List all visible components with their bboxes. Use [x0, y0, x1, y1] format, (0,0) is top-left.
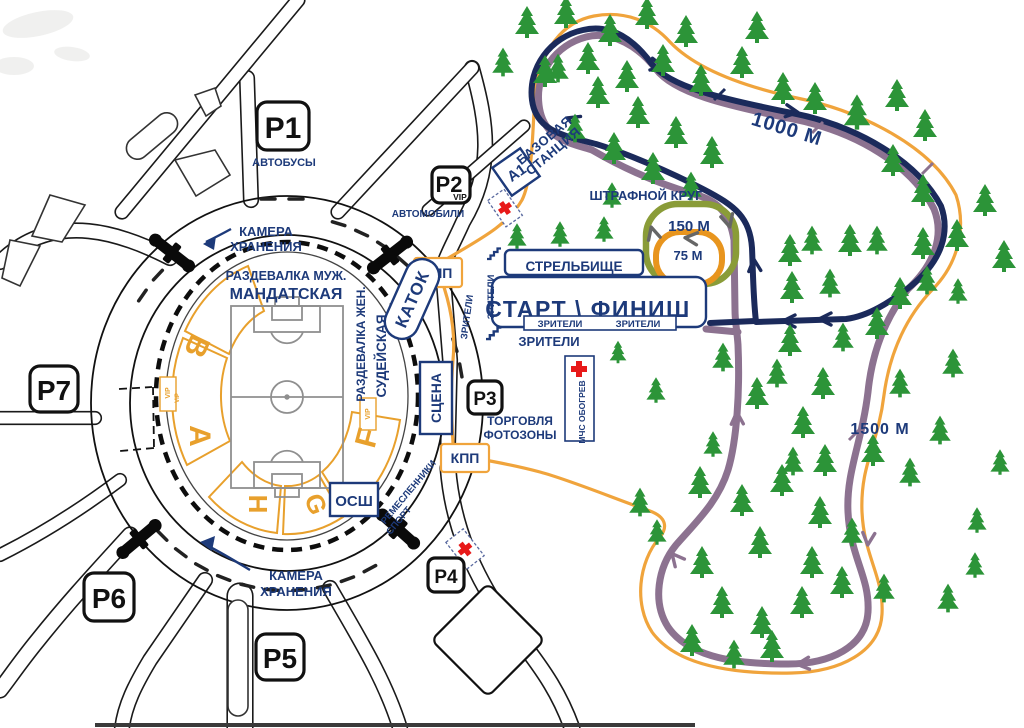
fir-tree-icon	[690, 546, 714, 578]
luggage-south-arrow	[210, 547, 250, 570]
parking-dash	[398, 257, 408, 266]
fir-tree-icon	[830, 566, 854, 598]
spectators-label: ЗРИТЕЛИ	[459, 294, 476, 340]
fir-tree-icon	[992, 240, 1016, 272]
fir-tree-icon	[576, 42, 600, 74]
luggage-south-line1: КАМЕРА	[269, 568, 323, 583]
fir-tree-icon	[712, 343, 734, 372]
vip-west-label2: VIP	[175, 393, 181, 403]
spectators-label: ЗРИТЕЛИ	[616, 319, 661, 330]
fir-tree-icon	[973, 184, 997, 216]
parking-p6-label: Р6	[92, 583, 126, 614]
fir-tree-icon	[646, 377, 665, 403]
cars-label: АВТОМОБИЛИ	[392, 209, 464, 220]
fir-tree-icon	[929, 416, 951, 445]
fir-tree-icon	[780, 271, 804, 303]
fir-tree-icon	[610, 341, 627, 363]
mchs-label: МЧС ОБОГРЕВ	[577, 380, 587, 443]
fir-tree-icon	[766, 359, 788, 388]
fir-tree-icon	[674, 15, 698, 47]
trail-1500m-finish-link	[706, 329, 738, 332]
fir-tree-icon	[838, 224, 862, 256]
trade-label: ТОРГОВЛЯ	[487, 414, 553, 428]
fir-tree-icon	[808, 496, 832, 528]
kpp-label: КПП	[451, 450, 480, 466]
fir-tree-icon	[688, 466, 712, 498]
fir-tree-icon	[790, 586, 814, 618]
fir-tree-icon	[703, 431, 722, 457]
parking-p3-label: Р3	[473, 389, 496, 410]
photo-label: ФОТОЗОНЫ	[483, 428, 556, 442]
fir-tree-icon	[550, 221, 569, 247]
direction-arrow-icon	[862, 533, 875, 546]
fir-tree-icon	[801, 226, 823, 255]
buses-label: АВТОБУСЫ	[252, 157, 316, 169]
luggage-south-line2: ХРАНЕНИЯ	[260, 584, 332, 599]
fir-tree-icon	[841, 518, 863, 547]
fir-tree-icon	[945, 219, 969, 251]
parking-dash	[176, 549, 186, 557]
parking-dash	[139, 290, 146, 301]
fir-tree-icon	[723, 640, 745, 669]
fir-tree-icon	[771, 72, 795, 104]
trail-1000m-finish-link	[710, 321, 755, 323]
fir-tree-icon	[965, 552, 984, 578]
fir-tree-icon	[730, 484, 754, 516]
trail-1500m-label: 1500 М	[850, 421, 909, 438]
mandate-label: МАНДАТСКАЯ	[230, 286, 343, 303]
luggage-north-arrowhead	[203, 236, 216, 250]
parking-p5-label: Р5	[263, 643, 297, 674]
parking-p7-label: Р7	[37, 375, 71, 406]
parking-dash	[460, 364, 462, 377]
fir-tree-icon	[710, 586, 734, 618]
fir-tree-icon	[629, 488, 651, 517]
parking-dash	[364, 566, 375, 572]
venue-map-svg: СТРЕЛЬБИЩЕ СТАРТ \ ФИНИШ ЗРИТЕЛИ ЗРИТЕЛИ…	[0, 0, 1024, 728]
osh-label: ОСШ	[335, 493, 373, 510]
fir-tree-icon	[990, 449, 1009, 475]
loop-75-label: 75 М	[674, 248, 703, 263]
fir-tree-icon	[492, 48, 514, 77]
fir-tree-icon	[913, 109, 937, 141]
fir-tree-icon	[813, 444, 837, 476]
sector-h-label: H	[243, 495, 273, 514]
parking-dash	[332, 222, 344, 226]
fir-tree-icon	[866, 226, 888, 255]
fir-tree-icon	[745, 377, 769, 409]
parking-dash	[158, 531, 167, 540]
vip-west-label: VIP	[165, 387, 172, 399]
fir-tree-icon	[937, 584, 959, 613]
parking-dash	[356, 230, 368, 235]
road-surface	[0, 480, 120, 555]
fir-tree-icon	[507, 223, 526, 249]
sector-a-label: A	[183, 425, 216, 447]
parking-dash	[218, 576, 230, 581]
road-surface	[247, 78, 251, 200]
dressing-men-label: РАЗДЕВАЛКА МУЖ.	[226, 269, 347, 283]
fir-tree-icon	[811, 367, 835, 399]
fir-tree-icon	[615, 60, 639, 92]
fir-tree-icon	[745, 11, 769, 43]
stairs-icon	[486, 328, 501, 340]
fir-tree-icon	[942, 349, 964, 378]
trail-branch-tick	[922, 163, 933, 174]
fir-tree-icon	[635, 0, 659, 29]
fir-tree-icon	[911, 227, 935, 259]
trail-1500m-loop	[539, 35, 939, 664]
fir-tree-icon	[594, 216, 613, 242]
venue-map: СТРЕЛЬБИЩЕ СТАРТ \ ФИНИШ ЗРИТЕЛИ ЗРИТЕЛИ…	[0, 0, 1024, 728]
fir-tree-icon	[861, 434, 885, 466]
fir-tree-icon	[800, 546, 824, 578]
fir-tree-icon	[967, 507, 986, 533]
fir-tree-icon	[515, 6, 539, 38]
spectators-label: ЗРИТЕЛИ	[538, 319, 583, 330]
medical-flag-icon	[488, 189, 523, 227]
fir-tree-icon	[730, 46, 754, 78]
stairs-icon	[487, 249, 501, 260]
dressing-women-label: РАЗДЕВАЛКА ЖЕН.	[354, 286, 368, 401]
luggage-north-line1: КАМЕРА	[239, 224, 293, 239]
parking-p4-label: Р4	[434, 567, 458, 588]
road-surface	[448, 468, 572, 728]
shooting-range-label: СТРЕЛЬБИЩЕ	[525, 259, 622, 274]
parking-dash	[341, 577, 353, 581]
ski-trails	[435, 14, 961, 673]
vip-east-label: VIP	[365, 408, 372, 420]
penalty-loop-label: ШТРАФНОЙ КРУГ	[589, 188, 703, 203]
spectators-label: ЗРИТЕЛИ	[486, 274, 497, 319]
fir-tree-icon	[554, 0, 578, 28]
fir-tree-icon	[948, 278, 967, 304]
fir-tree-icon	[748, 526, 772, 558]
rink-badge: КАТОК	[379, 254, 444, 345]
fir-tree-icon	[586, 76, 610, 108]
fir-tree-icon	[700, 136, 724, 168]
parking-dash	[153, 270, 162, 280]
fir-tree-icon	[832, 323, 854, 352]
fir-tree-icon	[889, 369, 911, 398]
luggage-north-line2: ХРАНЕНИЯ	[230, 239, 302, 254]
spectators-label: ЗРИТЕЛИ	[518, 334, 579, 349]
parking-p1-label: Р1	[265, 112, 302, 145]
fir-tree-icon	[778, 234, 802, 266]
loop-150-label: 150 М	[668, 218, 710, 235]
fir-tree-icon	[626, 96, 650, 128]
vip-label: VIP	[453, 192, 467, 202]
stage-label: СЦЕНА	[428, 373, 444, 423]
fir-tree-icon	[664, 116, 688, 148]
terrain-smudges	[0, 5, 91, 75]
road-surface	[330, 588, 400, 728]
fir-tree-icon	[899, 458, 921, 487]
fir-tree-icon	[803, 82, 827, 114]
fir-tree-icon	[791, 406, 815, 438]
parking-dash	[196, 564, 207, 570]
fir-tree-icon	[885, 79, 909, 111]
fir-tree-icon	[778, 324, 802, 356]
fir-tree-icon	[819, 269, 841, 298]
